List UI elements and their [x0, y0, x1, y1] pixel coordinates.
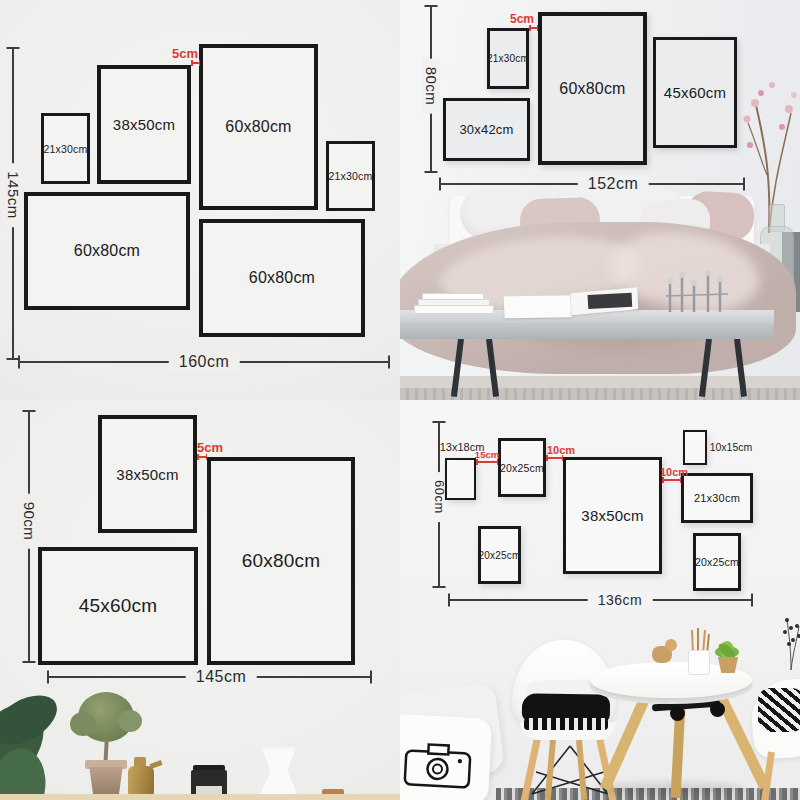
frame-38x50: 38x50cm [97, 65, 191, 184]
width-dimension-label: 136cm [588, 592, 653, 608]
frame-38x50: 38x50cm [98, 415, 197, 533]
gap-label: 5cm [172, 46, 198, 61]
height-dimension-label: 80cm [423, 59, 440, 114]
frame-21x30: 21x30cm [487, 28, 529, 89]
width-dimension-label: 160cm [169, 353, 240, 371]
layout-diagram-145x160: 145cm 160cm 21x30cm 38x50cm 60x80cm 21x3… [0, 0, 400, 400]
frame-30x42: 30x42cm [443, 98, 530, 161]
frame-60x80-portrait: 60x80cm [199, 44, 318, 210]
gap-indicator-line [197, 456, 207, 458]
frame-13x18 [445, 458, 476, 500]
plant-leaf [0, 744, 52, 800]
bedroom-scene-diagram-152x80: 80cm 152cm 21x30cm 60x80cm 45x60cm 30x42… [400, 0, 800, 400]
height-dimension-label: 90cm [21, 494, 38, 549]
gap-indicator-line [662, 479, 681, 481]
width-dimension-line: 145cm [47, 676, 372, 678]
frame-set-layout-collage: 145cm 160cm 21x30cm 38x50cm 60x80cm 21x3… [0, 0, 800, 800]
chair-patterned-cushion [758, 688, 800, 732]
gap-label: 5cm [197, 440, 223, 455]
table-bolt [710, 702, 725, 717]
width-dimension-line: 152cm [439, 183, 745, 185]
magazine-photo [588, 293, 633, 309]
wooden-toy-head [665, 639, 677, 651]
wood-table-top [0, 794, 400, 800]
candle-holders [662, 266, 732, 314]
topiary-foliage [70, 712, 96, 736]
pillow-camera-print [400, 713, 492, 800]
width-dimension-line: 136cm [448, 599, 753, 601]
magazine-page-left [504, 295, 572, 318]
gap-label: 10cm [660, 466, 688, 478]
frame-45x60: 45x60cm [653, 37, 737, 148]
camera-print-icon [400, 736, 475, 792]
white-vase [256, 747, 302, 800]
height-dimension-label: 145cm [5, 163, 22, 227]
dried-sprig [781, 610, 800, 670]
frame-21x30: 21x30cm [326, 141, 375, 211]
book [414, 305, 494, 314]
table-bolt [670, 706, 685, 721]
dining-scene-diagram-136x60: 60cm 136cm 13x18cm 10x15cm 20x25cm 38x50… [400, 400, 800, 800]
layout-diagram-90x145: 90cm 145cm 38x50cm 60x80cm 45x60cm 5cm [0, 400, 400, 800]
height-dimension-line: 80cm [430, 5, 432, 173]
gap-label: 5cm [510, 12, 534, 26]
gap-indicator-line [529, 27, 538, 29]
frame-20x25: 20x25cm [478, 526, 521, 584]
height-dimension-line: 90cm [28, 410, 30, 663]
frame-45x60: 45x60cm [38, 547, 198, 665]
gap-indicator-line [546, 457, 563, 459]
width-dimension-label: 152cm [578, 175, 649, 193]
frame-20x25: 20x25cm [498, 438, 546, 497]
frame-38x50: 38x50cm [563, 457, 662, 574]
gap-label: 15cm [475, 449, 499, 460]
frame-20x25: 20x25cm [693, 533, 741, 591]
topiary-foliage [118, 710, 142, 732]
frame-10x15 [683, 430, 707, 465]
frame-60x80-landscape: 60x80cm [199, 219, 365, 337]
frame-21x30-landscape: 21x30cm [681, 473, 753, 523]
frame-60x80: 60x80cm [207, 457, 355, 665]
folded-patterned-blanket [524, 718, 608, 730]
frame-size-callout-10x15: 10x15cm [710, 441, 753, 453]
pencil-cup [688, 650, 710, 675]
width-dimension-label: 145cm [186, 668, 257, 686]
frame-60x80: 60x80cm [538, 12, 647, 165]
gap-indicator-line [476, 461, 498, 463]
width-dimension-line: 160cm [18, 361, 390, 363]
gap-label: 10cm [547, 444, 575, 456]
frame-21x30: 21x30cm [41, 113, 90, 184]
bench-front [400, 323, 774, 339]
frame-60x80-landscape: 60x80cm [24, 192, 190, 310]
height-dimension-line: 145cm [12, 47, 14, 360]
gap-indicator-line [191, 62, 200, 64]
